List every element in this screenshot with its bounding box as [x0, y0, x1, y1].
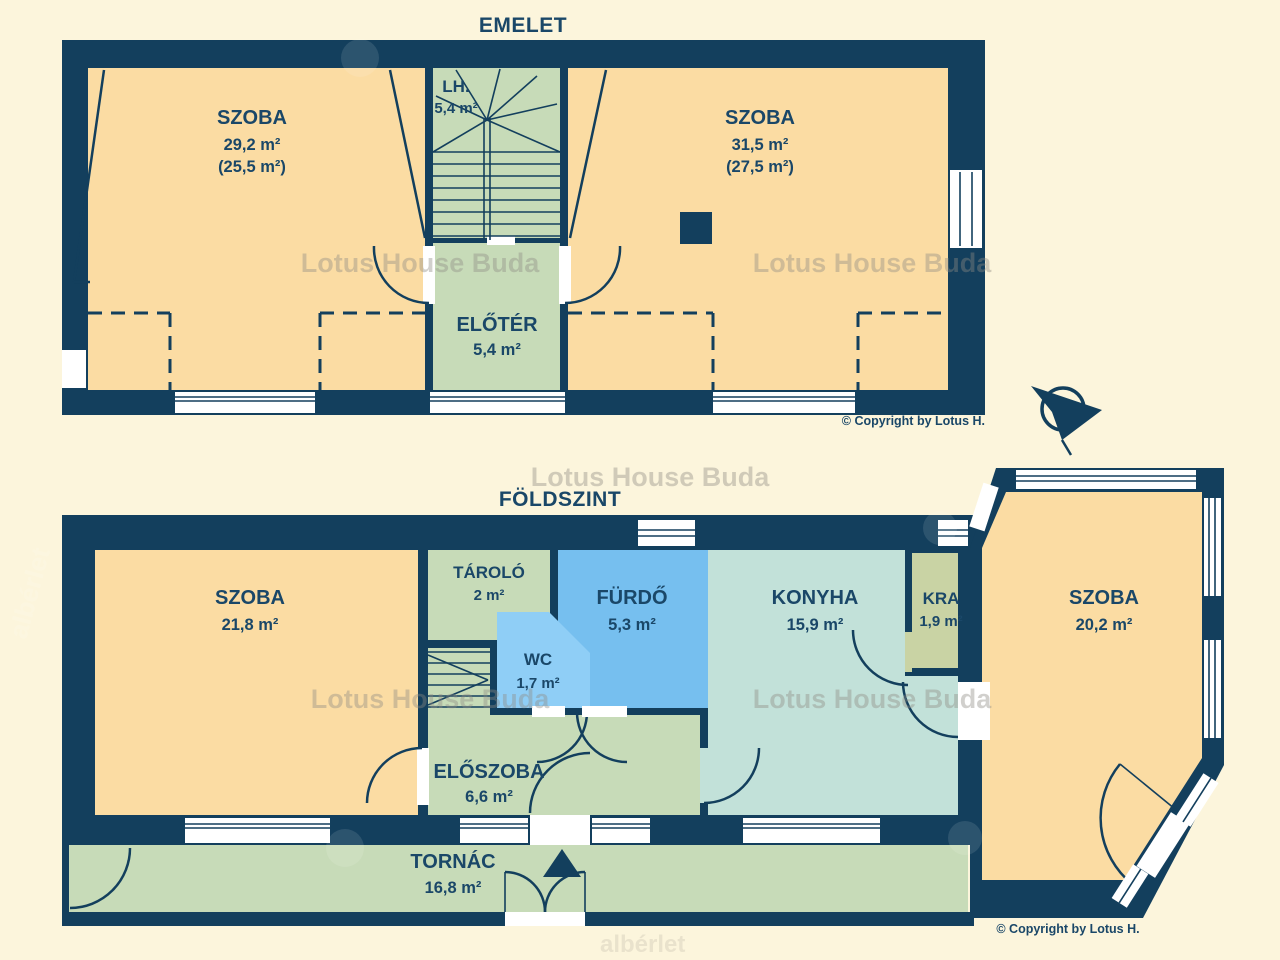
room-area: 1,9 m²: [919, 613, 962, 630]
window-bottom-eloszoba-left: [460, 818, 528, 843]
brand-watermark-text: albérlet: [3, 544, 56, 641]
room-label: SZOBA: [215, 587, 285, 609]
room-area: 15,9 m²: [787, 616, 844, 634]
upper-window-bottom-center: [430, 392, 565, 413]
room-label: WC: [524, 650, 552, 669]
room-label: LH.: [442, 77, 469, 96]
room-area: 29,2 m²: [224, 136, 281, 154]
room-area: 2 m²: [474, 587, 505, 604]
porch-left-wall: [62, 845, 69, 912]
room-label: SZOBA: [725, 107, 795, 129]
room-label: KRA: [923, 589, 960, 608]
window-annex-east-1: [1204, 498, 1221, 596]
room-label: FÜRDŐ: [596, 586, 667, 609]
watermark-text: Lotus House Buda: [311, 684, 550, 714]
room-label: KONYHA: [772, 587, 859, 609]
upper-window-bottom-left: [175, 392, 315, 413]
room-area: 5,4 m²: [473, 341, 521, 359]
brand-logo-ghost: [923, 511, 957, 545]
room-label: SZOBA: [1069, 587, 1139, 609]
room-area: 5,3 m²: [608, 616, 656, 634]
window-top-furdo: [638, 520, 695, 546]
upper-floor-title: EMELET: [479, 14, 567, 37]
room-area: 16,8 m²: [425, 879, 482, 897]
room-label: TORNÁC: [410, 850, 495, 873]
room-label: SZOBA: [217, 107, 287, 129]
window-bottom-konyha: [743, 818, 880, 843]
room-area: 31,5 m²: [732, 136, 789, 154]
wall-recess: [62, 350, 86, 388]
stair-opening: [487, 236, 515, 245]
copyright-upper: © Copyright by Lotus H.: [842, 414, 985, 428]
brand-logo-ghost: [948, 821, 982, 855]
room-label: TÁROLÓ: [453, 563, 525, 582]
window-bottom-szoba-left: [185, 818, 330, 843]
room-tornac: [68, 845, 968, 912]
brand-logo-ghost: [326, 829, 364, 867]
room-area: 6,6 m²: [465, 788, 513, 806]
room-kra: [912, 553, 958, 668]
room-label: ELŐSZOBA: [433, 760, 544, 783]
window-bottom-eloszoba-right: [592, 818, 650, 843]
upper-window-bottom-right: [713, 392, 855, 413]
room-area-net: (25,5 m²): [218, 158, 286, 176]
upper-floor-plan: SZOBA 29,2 m² (25,5 m²) LH. 5,4 m² ELŐTÉ…: [62, 40, 985, 428]
watermark-text: Lotus House Buda: [531, 462, 770, 492]
copyright-ground: © Copyright by Lotus H.: [996, 922, 1139, 936]
brand-logo-ghost: [341, 39, 379, 77]
room-label: ELŐTÉR: [456, 313, 538, 336]
watermark-text: Lotus House Buda: [753, 248, 992, 278]
room-area: 21,8 m²: [222, 616, 279, 634]
room-area: 5,4 m²: [434, 100, 477, 117]
upper-window-east: [950, 170, 982, 248]
watermark-text: Lotus House Buda: [301, 248, 540, 278]
window-annex-east-2: [1204, 640, 1221, 738]
brand-watermark-text: albérlet: [600, 931, 685, 958]
window-annex-top: [1016, 470, 1196, 489]
chimney: [680, 212, 712, 244]
compass-icon: [1031, 386, 1102, 455]
watermark-text: Lotus House Buda: [753, 684, 992, 714]
room-area-net: (27,5 m²): [726, 158, 794, 176]
floor-plan-canvas: EMELET: [0, 0, 1280, 960]
room-area: 20,2 m²: [1076, 616, 1133, 634]
ground-floor-plan: SZOBA 21,8 m² TÁROLÓ 2 m² FÜRDŐ 5,3 m² W…: [62, 468, 1224, 936]
